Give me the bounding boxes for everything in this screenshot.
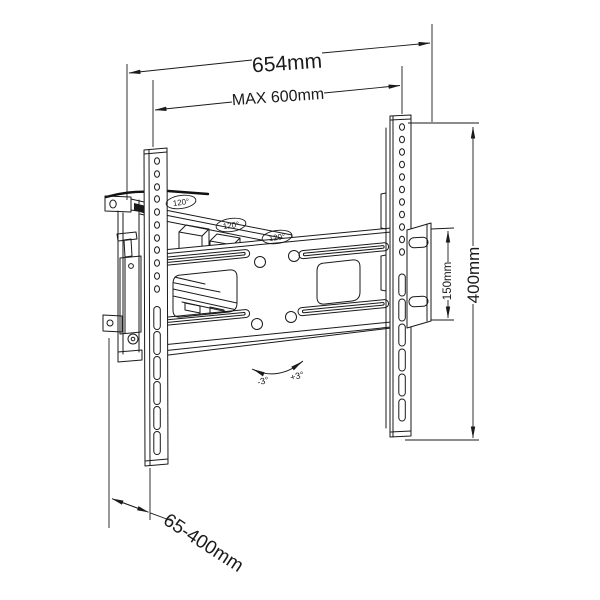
wall-anchor-hole-top [110, 200, 116, 208]
wall-anchor-hole-bottom [107, 320, 113, 326]
dim-plate-spacing: 150mm [431, 228, 454, 320]
tilt-negative-label: -3° [256, 375, 270, 388]
rail-adapter-plate [407, 223, 431, 328]
dim-150mm-label: 150mm [442, 262, 454, 300]
arm-top-bold-edge [168, 191, 208, 194]
wall-mount-technical-drawing: 654mm MAX 600mm 400mm 150mm 65-400mm -3° [0, 0, 600, 600]
annotation-tilt: -3° +3° [252, 361, 305, 387]
annotation-swivel-1: 120° [165, 193, 197, 210]
tilt-positive-label: +3° [289, 369, 305, 382]
swivel-angle-label: 120° [172, 197, 190, 208]
plate-cutout-left [173, 270, 237, 317]
extension-line [431, 228, 454, 229]
main-plate [152, 228, 391, 357]
dim-400mm-label: 400mm [464, 247, 483, 304]
dim-wall-distance: 65-400mm [109, 338, 247, 577]
dim-654mm-label: 654mm [251, 50, 322, 78]
tilt-lock-knob [117, 232, 137, 257]
left-tv-rail [144, 148, 168, 466]
plate-cutout-right [317, 260, 360, 304]
dim-max600mm-label: MAX 600mm [231, 86, 324, 109]
dim-65-400mm-label: 65-400mm [159, 510, 247, 577]
pivot-bolt [128, 334, 138, 344]
dim-max-width: MAX 600mm [153, 66, 402, 147]
drawing-canvas: 654mm MAX 600mm 400mm 150mm 65-400mm -3° [0, 0, 600, 600]
